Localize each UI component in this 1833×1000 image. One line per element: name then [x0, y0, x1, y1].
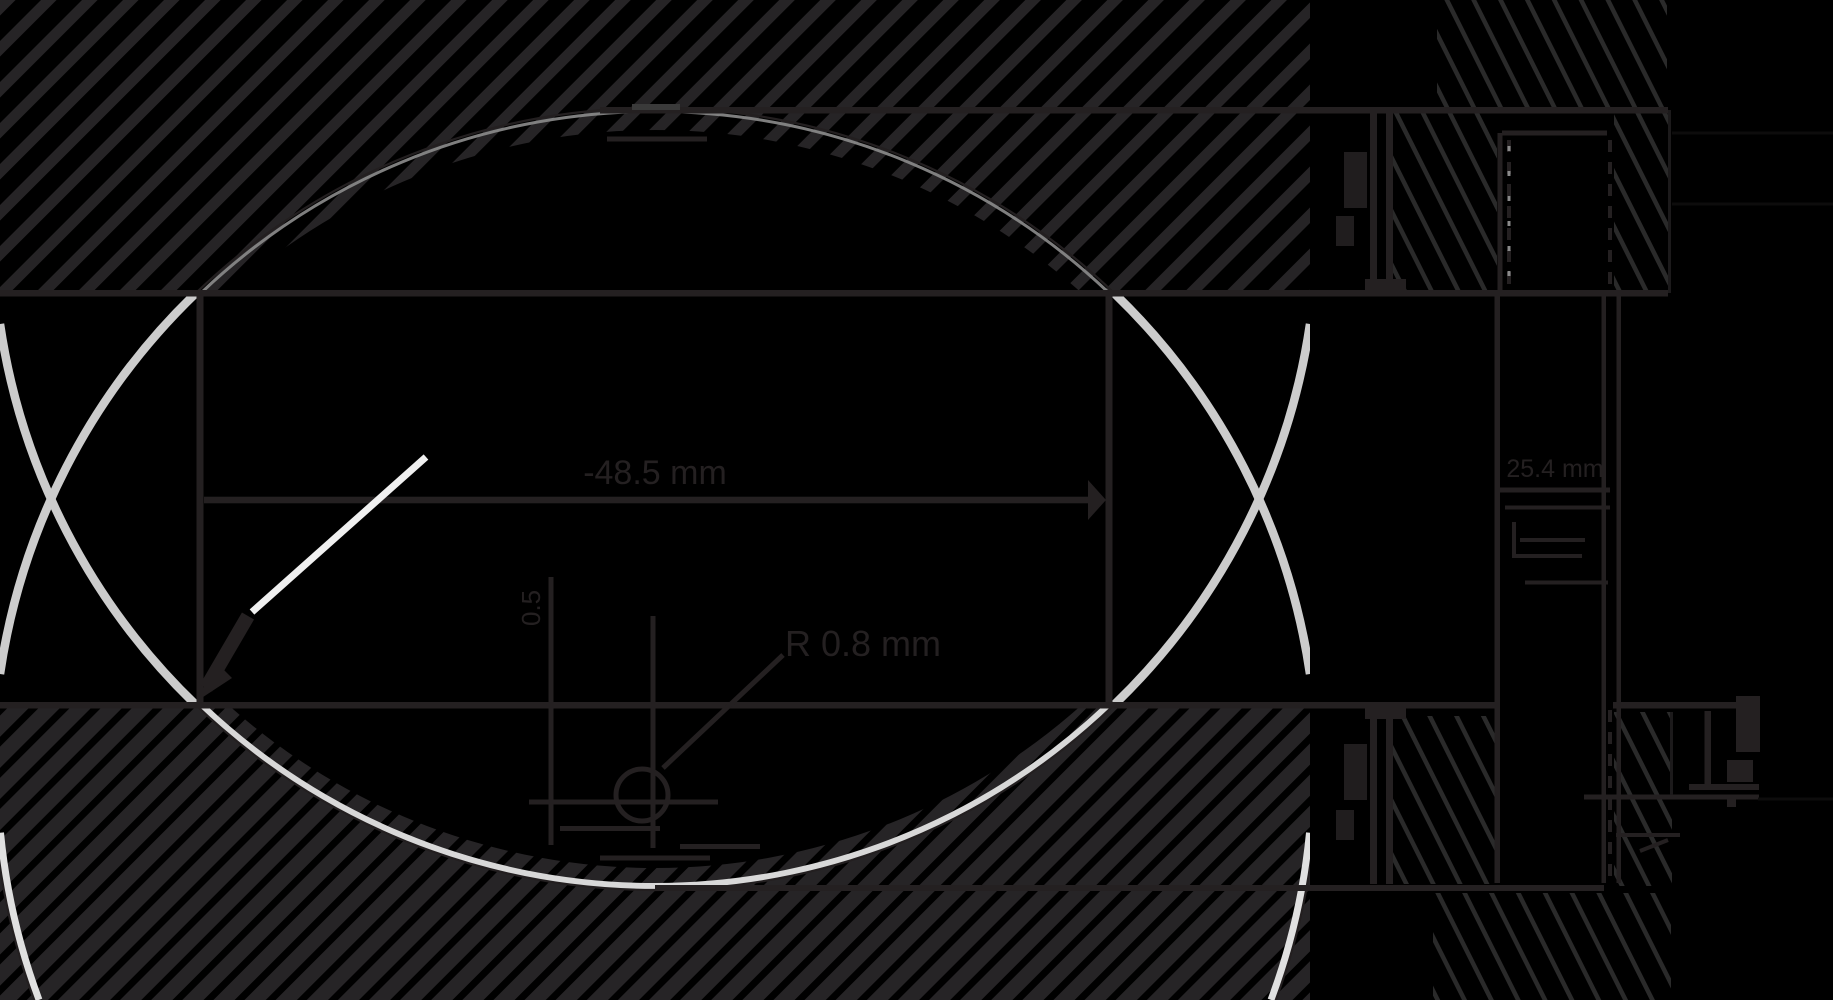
svg-text:-48.5 mm: -48.5 mm: [583, 454, 727, 492]
svg-text:0.5: 0.5: [516, 590, 546, 626]
svg-text:R 0.8 mm: R 0.8 mm: [785, 623, 941, 664]
svg-text:25.4 mm: 25.4 mm: [1506, 455, 1603, 483]
